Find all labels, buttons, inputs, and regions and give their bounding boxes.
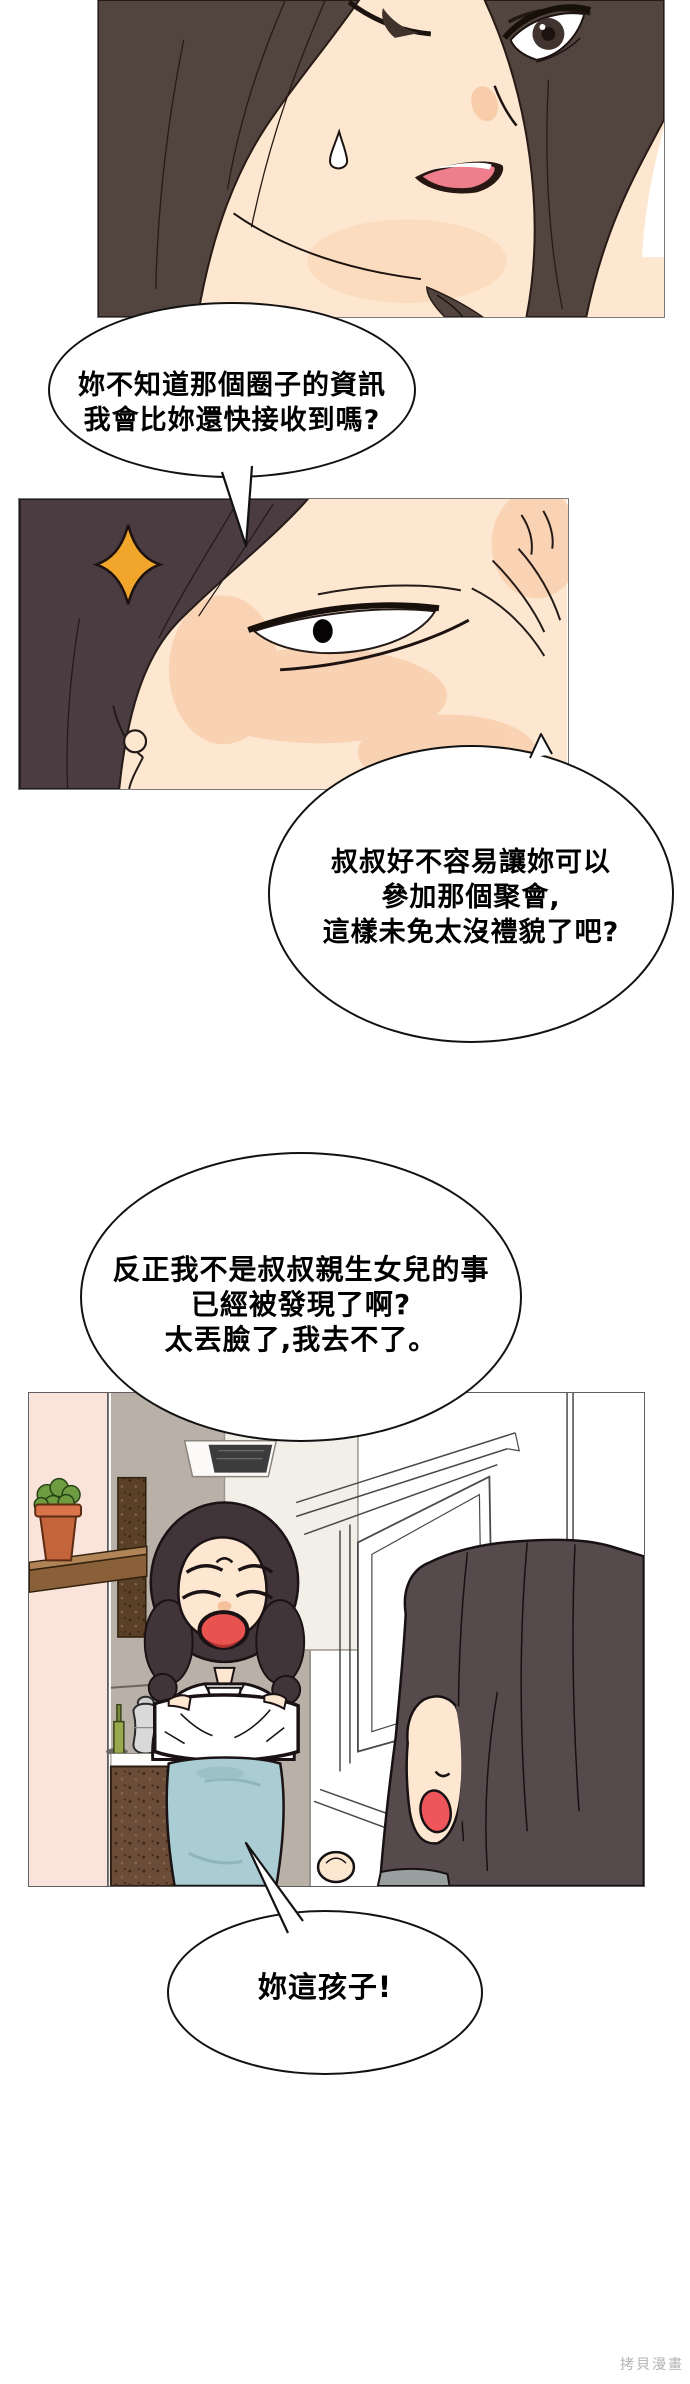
speech-bubble-1-line: 我會比妳還快接收到嗎? xyxy=(84,403,381,438)
mother-figure xyxy=(145,1503,304,1886)
crossed-arms xyxy=(155,1694,298,1760)
speech-bubble-1-tail xyxy=(208,460,258,552)
watermark: 拷貝漫畫 xyxy=(620,2354,684,2374)
speech-bubble-2-tail xyxy=(524,728,558,762)
speech-bubble-2: 叔叔好不容易讓妳可以 參加那個聚會, 這樣未免太沒禮貌了吧? xyxy=(268,745,674,1043)
speech-bubble-3-line: 太丟臉了,我去不了。 xyxy=(165,1322,438,1357)
speech-bubble-1: 妳不知道那個圈子的資訊 我會比妳還快接收到嗎? xyxy=(48,302,416,478)
panel-1 xyxy=(97,0,665,318)
range-hood xyxy=(185,1441,277,1477)
collar xyxy=(378,1869,450,1886)
hand xyxy=(318,1852,354,1882)
speech-bubble-2-line: 這樣未免太沒禮貌了吧? xyxy=(323,915,620,950)
speech-bubble-2-line: 叔叔好不容易讓妳可以 xyxy=(331,845,611,880)
speech-bubble-3-line: 反正我不是叔叔親生女兒的事 xyxy=(112,1252,489,1287)
speech-bubble-1-line: 妳不知道那個圈子的資訊 xyxy=(78,368,386,403)
speech-bubble-4: 妳這孩子! xyxy=(167,1910,483,2075)
speech-bubble-3: 反正我不是叔叔親生女兒的事 已經被發現了啊? 太丟臉了,我去不了。 xyxy=(80,1152,522,1442)
panel-3 xyxy=(28,1392,645,1887)
speech-bubble-4-line: 妳這孩子! xyxy=(258,1970,392,2004)
panel-1-art xyxy=(98,0,664,317)
speech-bubble-3-line: 已經被發現了啊? xyxy=(191,1287,411,1322)
speech-bubble-2-line: 參加那個聚會, xyxy=(381,880,560,915)
shouting-mouth xyxy=(200,1612,248,1648)
panel-3-art xyxy=(29,1393,644,1886)
comic-page: 妳不知道那個圈子的資訊 我會比妳還快接收到嗎? 叔叔好不容易讓妳可以 參加那個聚… xyxy=(0,0,690,2384)
speech-bubble-4-tail xyxy=(238,1833,308,1941)
earring-icon xyxy=(124,730,146,752)
pink-wall xyxy=(29,1393,107,1886)
